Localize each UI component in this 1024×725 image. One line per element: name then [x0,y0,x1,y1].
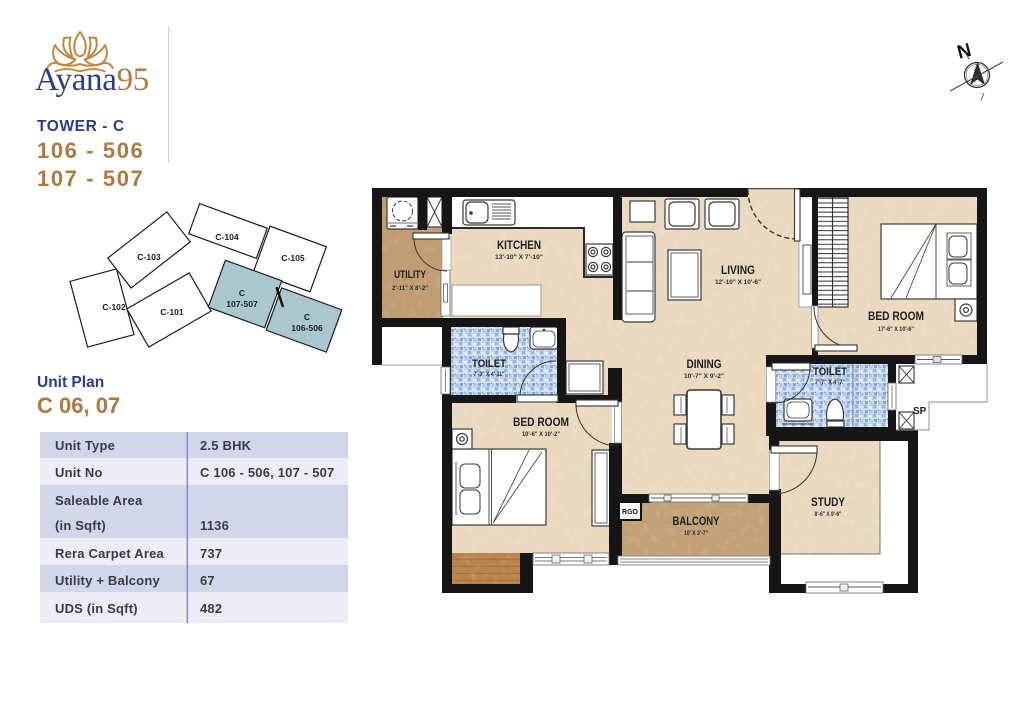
svg-text:C 06, 07: C 06, 07 [37,393,120,418]
svg-text:C-101: C-101 [160,307,184,317]
svg-text:106-506: 106-506 [291,323,323,333]
svg-text:1136: 1136 [200,518,229,533]
svg-text:107-507: 107-507 [226,299,258,309]
svg-text:C-103: C-103 [137,252,161,262]
svg-text:2.5 BHK: 2.5 BHK [200,438,252,453]
svg-text:17'-6" X 10'-6": 17'-6" X 10'-6" [878,326,914,333]
svg-text:BED ROOM: BED ROOM [868,309,924,323]
svg-text:67: 67 [200,573,215,588]
svg-text:C: C [304,312,310,322]
svg-text:SP: SP [913,406,927,417]
svg-text:C 106 - 506, 107 - 507: C 106 - 506, 107 - 507 [200,465,335,480]
svg-text:Unit Type: Unit Type [55,438,115,453]
svg-text:TOILET: TOILET [813,366,847,378]
svg-text:(in Sqft): (in Sqft) [55,518,106,533]
svg-text:Ayana95: Ayana95 [35,62,149,98]
svg-text:KITCHEN: KITCHEN [497,238,541,252]
svg-text:Unit No: Unit No [55,465,103,480]
svg-text:C-104: C-104 [215,232,239,242]
svg-text:Saleable Area: Saleable Area [55,493,143,508]
svg-text:10'-7" X 9'-2": 10'-7" X 9'-2" [684,373,724,380]
svg-text:10'-6" X 10'-2": 10'-6" X 10'-2" [522,431,560,438]
svg-text:C: C [239,288,245,298]
svg-text:STUDY: STUDY [811,495,845,509]
svg-text:482: 482 [200,601,222,616]
svg-text:LIVING: LIVING [721,263,755,277]
svg-text:BED ROOM: BED ROOM [513,415,569,429]
svg-text:Unit Plan: Unit Plan [37,374,104,391]
svg-text:10' X 3'-7": 10' X 3'-7" [684,531,708,537]
svg-text:DINING: DINING [687,357,722,371]
svg-text:RGO: RGO [622,509,639,516]
svg-text:737: 737 [200,546,222,561]
svg-text:7'-7" X 4'-7": 7'-7" X 4'-7" [815,380,845,386]
svg-text:BALCONY: BALCONY [673,514,720,528]
svg-text:UTILITY: UTILITY [394,269,427,281]
svg-text:107 - 507: 107 - 507 [37,166,144,191]
svg-text:12'-10" X 10'-6": 12'-10" X 10'-6" [715,279,761,286]
svg-text:TOWER - C: TOWER - C [37,118,125,135]
svg-text:TOILET: TOILET [472,358,506,370]
svg-text:Utility + Balcony: Utility + Balcony [55,573,160,588]
svg-text:106 - 506: 106 - 506 [37,138,144,163]
svg-text:8'-6" X 9'-6": 8'-6" X 9'-6" [815,512,842,518]
svg-text:C-102: C-102 [102,302,126,312]
svg-text:13'-10" X 7'-10": 13'-10" X 7'-10" [495,254,543,261]
svg-text:UDS (in Sqft): UDS (in Sqft) [55,601,138,616]
svg-text:2'-11" X 8'-2": 2'-11" X 8'-2" [392,285,428,292]
svg-text:Rera Carpet Area: Rera Carpet Area [55,546,165,561]
svg-text:7'-3" X 4'-11": 7'-3" X 4'-11" [474,372,505,378]
svg-text:C-105: C-105 [281,253,305,263]
